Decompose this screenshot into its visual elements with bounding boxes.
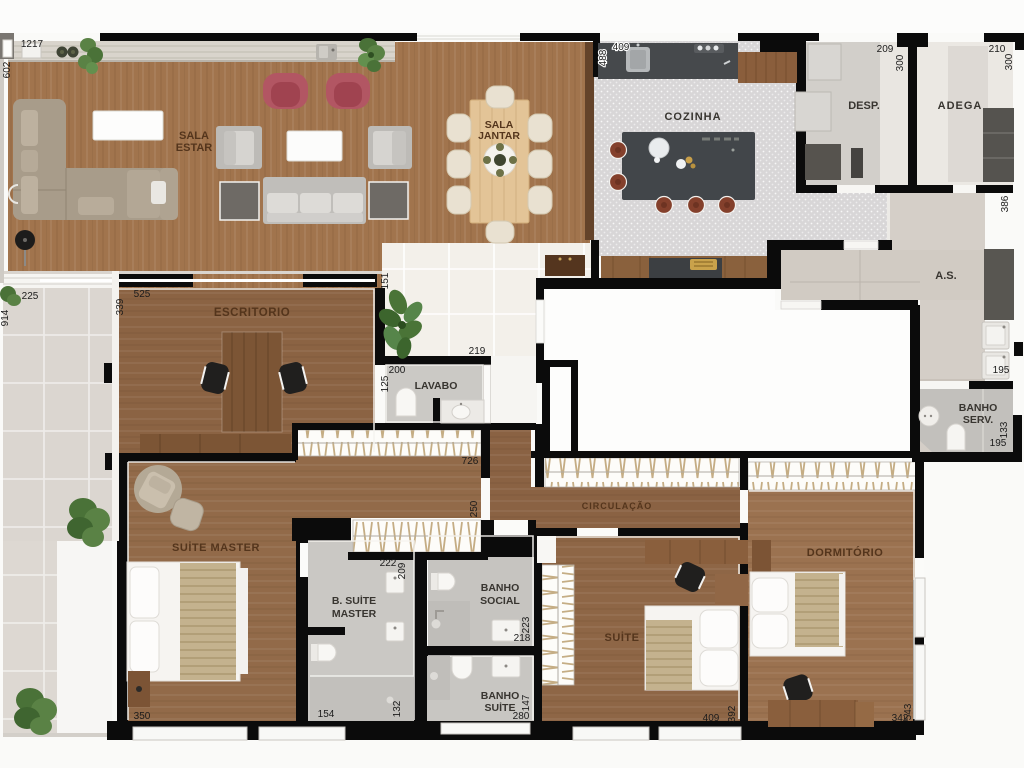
svg-text:COZINHA: COZINHA — [664, 111, 721, 123]
svg-text:SUİTE: SUİTE — [485, 701, 516, 714]
svg-text:200: 200 — [389, 365, 406, 376]
svg-text:392: 392 — [727, 705, 738, 722]
svg-text:409: 409 — [703, 713, 720, 724]
svg-text:726: 726 — [462, 456, 479, 467]
svg-text:BANHO: BANHO — [959, 402, 998, 414]
svg-text:SOCIAL: SOCIAL — [480, 595, 520, 607]
svg-text:ESTAR: ESTAR — [176, 142, 213, 154]
svg-text:525: 525 — [134, 289, 151, 300]
svg-text:ESCRITORIO: ESCRITORIO — [214, 307, 290, 319]
svg-text:386: 386 — [1000, 195, 1011, 212]
svg-text:300: 300 — [1004, 53, 1015, 70]
svg-text:223: 223 — [521, 616, 532, 633]
svg-text:SALA: SALA — [179, 130, 209, 142]
svg-text:339: 339 — [115, 298, 126, 315]
svg-text:154: 154 — [318, 709, 335, 720]
svg-text:209: 209 — [877, 44, 894, 55]
svg-text:151: 151 — [380, 272, 391, 289]
svg-text:147: 147 — [521, 694, 532, 711]
svg-text:195: 195 — [993, 365, 1010, 376]
svg-text:SUİTE: SUİTE — [605, 631, 640, 644]
svg-text:ADEGA: ADEGA — [938, 100, 983, 112]
svg-text:CIRCULAÇÃO: CIRCULAÇÃO — [582, 501, 653, 511]
svg-text:409: 409 — [613, 42, 630, 53]
svg-text:300: 300 — [895, 54, 906, 71]
svg-text:A.S.: A.S. — [935, 270, 956, 282]
svg-text:195: 195 — [990, 438, 1007, 449]
svg-text:602: 602 — [2, 61, 13, 78]
svg-text:133: 133 — [999, 421, 1010, 438]
svg-text:218: 218 — [514, 633, 531, 644]
svg-text:222: 222 — [380, 558, 397, 569]
svg-text:488: 488 — [598, 49, 609, 66]
svg-text:SERV.: SERV. — [963, 414, 993, 426]
svg-text:219: 219 — [469, 346, 486, 357]
svg-text:BANHO: BANHO — [481, 582, 520, 594]
svg-text:225: 225 — [22, 291, 39, 302]
svg-text:250: 250 — [469, 500, 480, 517]
svg-text:914: 914 — [0, 309, 11, 326]
svg-text:DESP.: DESP. — [848, 100, 880, 112]
svg-text:1217: 1217 — [21, 39, 44, 50]
svg-text:MASTER: MASTER — [332, 608, 377, 620]
svg-text:JANTAR: JANTAR — [478, 130, 520, 142]
svg-text:SUİTE MASTER: SUİTE MASTER — [172, 541, 260, 554]
svg-text:LAVABO: LAVABO — [415, 380, 458, 392]
svg-text:BANHO: BANHO — [481, 690, 520, 702]
svg-text:209: 209 — [397, 562, 408, 579]
svg-text:B. SUİTE: B. SUİTE — [332, 594, 376, 607]
svg-text:350: 350 — [134, 711, 151, 722]
svg-text:210: 210 — [989, 44, 1006, 55]
svg-text:125: 125 — [380, 375, 391, 392]
svg-text:DORMITÓRIO: DORMITÓRIO — [807, 546, 884, 559]
svg-text:543: 543 — [903, 703, 914, 720]
svg-text:280: 280 — [513, 711, 530, 722]
svg-text:132: 132 — [392, 700, 403, 717]
